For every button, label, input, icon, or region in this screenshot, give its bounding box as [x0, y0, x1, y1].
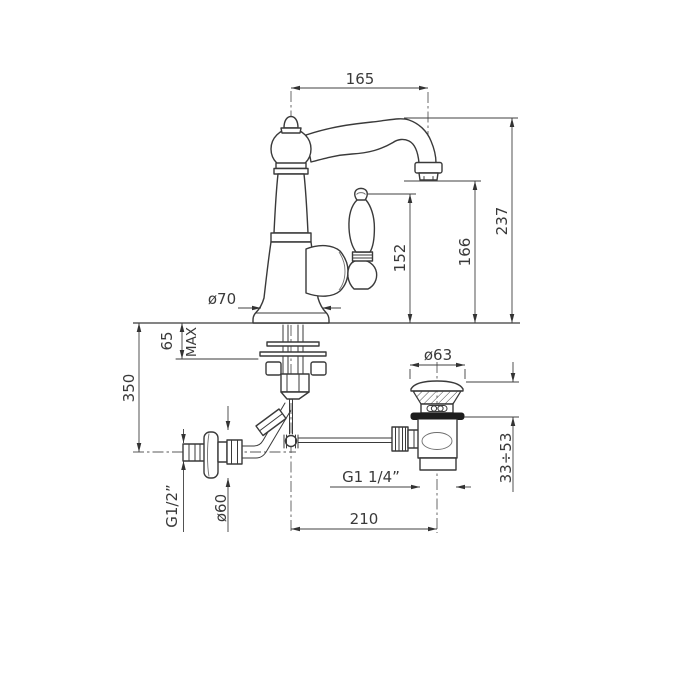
elbow-hex-nut — [227, 440, 242, 464]
handle-grip — [349, 197, 374, 252]
waste-top-flange — [411, 413, 464, 420]
head-finial-base — [281, 128, 301, 133]
dim-base-diameter-label: ø70 — [208, 290, 236, 308]
pop-up-waste-group — [392, 381, 464, 470]
technical-drawing-page: 165 237 166 152 ø70 65 MAX — [0, 0, 699, 700]
dim-flange-diameter-label: ø60 — [212, 494, 230, 522]
dim-spout-reach-label: 165 — [346, 70, 375, 88]
body-ring — [271, 233, 311, 242]
handle-socket — [306, 246, 348, 297]
dim-plug-diameter-label: ø63 — [424, 346, 452, 364]
elbow-ring — [218, 442, 227, 462]
aerator-tip — [419, 173, 438, 180]
faucet-technical-drawing: 165 237 166 152 ø70 65 MAX — [0, 0, 699, 700]
wall-escutcheon-flange — [204, 432, 218, 478]
faucet-body-group — [253, 117, 442, 324]
adapter-taper — [281, 392, 309, 399]
dim-overall-height-label: 237 — [493, 207, 511, 236]
dim-supply-thread-label: G1/2” — [163, 484, 181, 528]
dim-deck-max-qualifier-label: MAX — [184, 327, 200, 357]
handle-ball — [348, 260, 377, 289]
dim-center-distance-label: 210 — [350, 510, 379, 528]
dim-spout-outlet-height-label: 166 — [456, 238, 474, 267]
waste-plug-taper — [413, 391, 461, 404]
dim-deck-max-value-label: 65 — [158, 331, 176, 350]
dim-waste-range-label: 33÷53 — [497, 433, 515, 484]
head-finial-dome — [284, 117, 298, 129]
rod-ball-joint — [286, 436, 297, 447]
shank-washer-lower — [260, 352, 326, 356]
under-deck-group — [183, 325, 394, 478]
mounting-lug-left — [266, 362, 281, 375]
faucet-spout — [306, 119, 436, 163]
dim-handle-height-label: 152 — [391, 244, 409, 273]
neck-collar-upper — [276, 163, 306, 169]
dim-waste-thread-label: G1 1/4” — [342, 468, 400, 486]
waste-tailpiece — [420, 458, 456, 470]
body-column — [274, 174, 308, 233]
handle-collar — [353, 252, 373, 261]
waste-plug-cap — [411, 381, 463, 391]
supply-thread-stub — [183, 444, 205, 461]
mounting-lug-right — [311, 362, 326, 375]
neck-collar-lower — [274, 169, 308, 175]
aerator-ring — [415, 163, 442, 174]
horizontal-linkage-rod — [298, 438, 394, 443]
shank-hex-adapter — [281, 374, 309, 392]
shank-washer-upper — [267, 342, 319, 346]
dim-supply-length-label: 350 — [120, 374, 138, 403]
